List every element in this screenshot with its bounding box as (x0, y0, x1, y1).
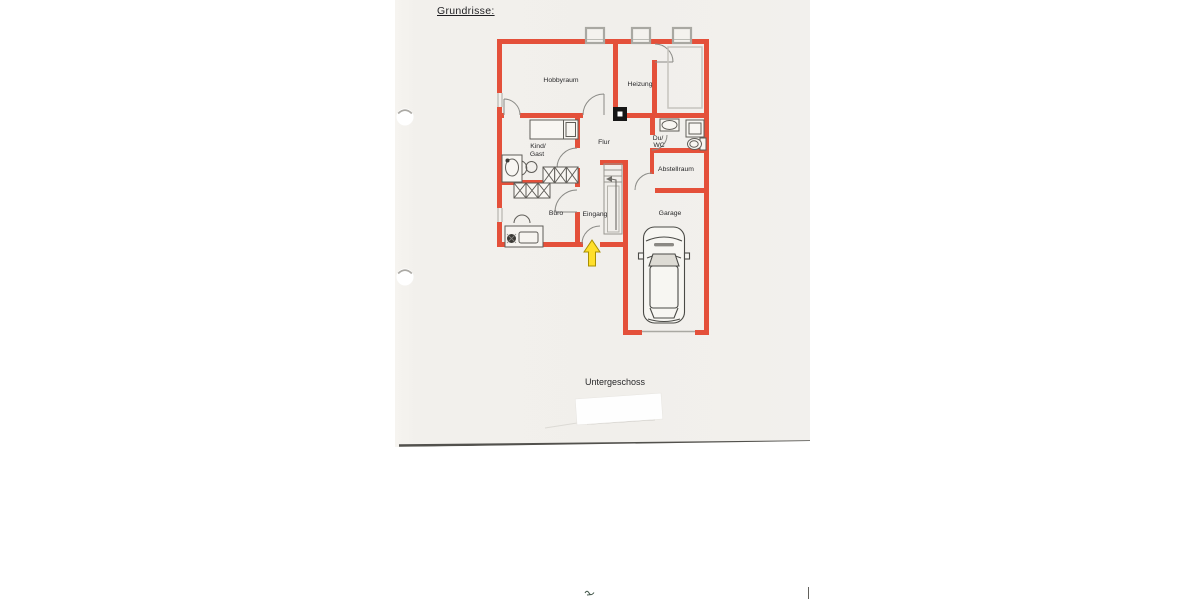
bed-icon (530, 120, 578, 139)
floor-caption: Untergeschoss (585, 377, 646, 387)
paper-bottom-edge (399, 442, 810, 446)
room-label-kindgast-2: Gast (530, 151, 544, 158)
entrance-arrow-icon (584, 240, 600, 266)
scan-artifact-tick (808, 587, 809, 599)
door-arc-hobbyraum-flur (583, 94, 604, 115)
chimney-icon (613, 107, 627, 121)
window-icon-buero-left (496, 208, 505, 222)
room-label-garage: Garage (659, 210, 682, 217)
desk-icon (505, 215, 543, 247)
door-arc-abstellraum (635, 173, 652, 190)
sink-icon (660, 119, 679, 131)
shower-icon (686, 120, 704, 137)
floorplan-drawing: Hobbyraum Heizung Flur Kind/ Gast Du/ WC… (395, 0, 810, 449)
hole-punch-top (397, 109, 414, 126)
room-label-abstellraum: Abstellraum (658, 166, 694, 173)
whiteout-patch (545, 393, 663, 428)
room-label-eingang: Eingang (583, 211, 608, 218)
room-label-duwc-2: WC (653, 142, 664, 149)
door-arc-buero (555, 190, 577, 212)
washbasin-icon (502, 155, 537, 182)
room-label-duwc-1: Du/ (653, 135, 664, 142)
room-labels: Hobbyraum Heizung Flur Kind/ Gast Du/ WC… (530, 77, 694, 218)
window-icon-top-2 (632, 28, 650, 43)
room-label-heizung: Heizung (628, 81, 653, 88)
window-icon-top-1 (586, 28, 604, 43)
scan-artifact-scribble (584, 588, 596, 597)
scanned-page-canvas: Grundrisse: (0, 0, 1200, 600)
scanned-paper: Grundrisse: (395, 0, 810, 449)
wardrobe-icon-upper (543, 167, 578, 183)
car-icon (639, 227, 690, 323)
wardrobe-icon-lower (514, 183, 550, 198)
window-icon-hobbyraum-left (496, 93, 505, 107)
toilet-icon (688, 138, 707, 150)
room-label-flur: Flur (598, 139, 610, 146)
faint-room-outline (668, 47, 702, 108)
window-icon-top-3 (673, 28, 691, 43)
room-label-kindgast-1: Kind/ (530, 143, 546, 150)
door-arc-hobbyraum-left (504, 99, 520, 115)
room-label-buero: Büro (549, 210, 564, 217)
stairs-icon (604, 164, 622, 234)
hole-punch-bottom (397, 269, 414, 286)
room-label-hobbyraum: Hobbyraum (543, 77, 578, 84)
door-arc-kindgast (557, 148, 577, 168)
